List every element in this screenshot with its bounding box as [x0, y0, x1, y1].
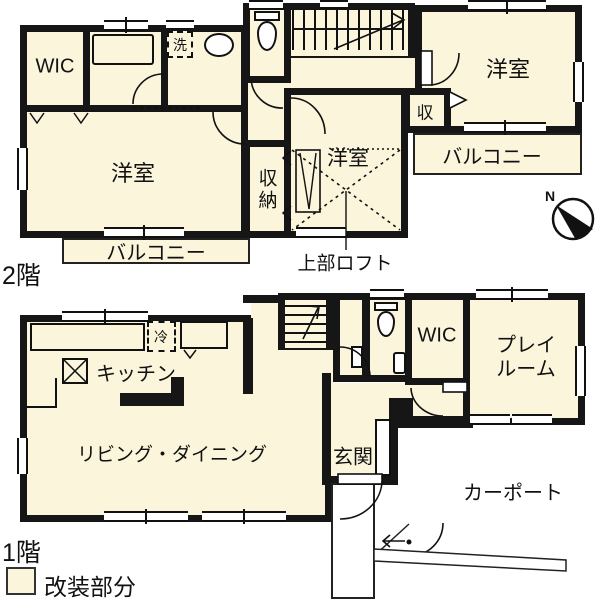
- vanity-icon: [351, 346, 363, 368]
- window: [370, 289, 404, 299]
- window: [575, 346, 586, 396]
- bathtub-icon: [92, 34, 154, 65]
- stairs-treads-1f: [285, 300, 326, 343]
- shoe-cabinet-icon: [375, 419, 391, 476]
- wall-carport-top: [389, 416, 473, 428]
- window: [512, 414, 552, 425]
- toilet-tank-icon: [254, 11, 280, 21]
- floor-plan-canvas: WIC 洗 洋室 収納 洋室 洋室 収 バルコニー バルコニー 上部ロフト 2階…: [0, 0, 600, 602]
- stairs-treads-2f: [292, 10, 404, 50]
- window-tick: [104, 309, 106, 324]
- window: [166, 20, 194, 30]
- label-kitchen: キッチン: [96, 358, 176, 387]
- gate-arc: [410, 523, 443, 556]
- window: [249, 0, 283, 10]
- wall-ld-entrance: [322, 373, 331, 485]
- window-tick: [504, 120, 506, 135]
- label-closet-small-2f: 収: [417, 99, 434, 124]
- window: [17, 148, 28, 190]
- label-carport: カーポート: [463, 477, 563, 506]
- label-wic-2f: WIC: [36, 56, 75, 79]
- porch: [331, 483, 375, 599]
- label-bedroom-right-2f: 洋室: [486, 52, 530, 84]
- gate-hinge-dot: [407, 540, 412, 545]
- kitchen-counter-icon: [30, 323, 145, 351]
- label-playroom-line2: ルーム: [496, 353, 555, 382]
- label-wic-1f: WIC: [418, 325, 457, 348]
- compass-needle-icon: [556, 205, 593, 240]
- label-balcony-left-2f: バルコニー: [106, 237, 206, 266]
- label-laundry-2f: 洗: [173, 35, 187, 55]
- window-tick: [145, 509, 147, 524]
- label-balcony-right-2f: バルコニー: [442, 141, 542, 170]
- window: [573, 62, 584, 102]
- window-tick: [506, 0, 508, 14]
- window: [17, 438, 28, 474]
- label-fridge: 冷: [154, 327, 168, 347]
- window-tick: [243, 509, 245, 524]
- window-tick: [511, 287, 513, 302]
- label-loft-note: 上部ロフト: [297, 249, 392, 276]
- wall-kitchen-stub: [243, 318, 253, 394]
- window: [470, 414, 510, 425]
- stairs-landing-line-2f: [292, 28, 404, 30]
- kitchen-cabinet-icon: [180, 321, 228, 349]
- label-entrance: 玄関: [333, 441, 373, 470]
- open-counter-icon: [25, 378, 57, 408]
- porch-diagonal: [374, 524, 409, 556]
- window: [320, 0, 348, 9]
- legend-swatch: [6, 567, 36, 595]
- window-tick: [125, 17, 127, 33]
- label-bedroom-middle-2f: 洋室: [327, 142, 369, 172]
- label-bedroom-left-2f: 洋室: [111, 156, 155, 188]
- legend-label: 改装部分: [44, 568, 136, 602]
- window: [296, 227, 346, 238]
- label-living-dining: リビング・ダイニング: [77, 440, 267, 467]
- compass-circle: [553, 199, 593, 239]
- gate-arrowhead: [383, 535, 390, 547]
- label-closet-2f: 収納: [253, 168, 280, 212]
- wall-toilet-divider: [362, 300, 370, 377]
- sink-basin-icon: [204, 33, 234, 57]
- label-compass-n: N: [545, 188, 555, 204]
- fence-bar: [374, 549, 566, 571]
- toilet-basin-icon: [393, 352, 406, 374]
- label-floor-1f: 1階: [2, 533, 41, 569]
- toilet-tank-icon: [374, 302, 398, 311]
- label-floor-2f: 2階: [2, 256, 41, 292]
